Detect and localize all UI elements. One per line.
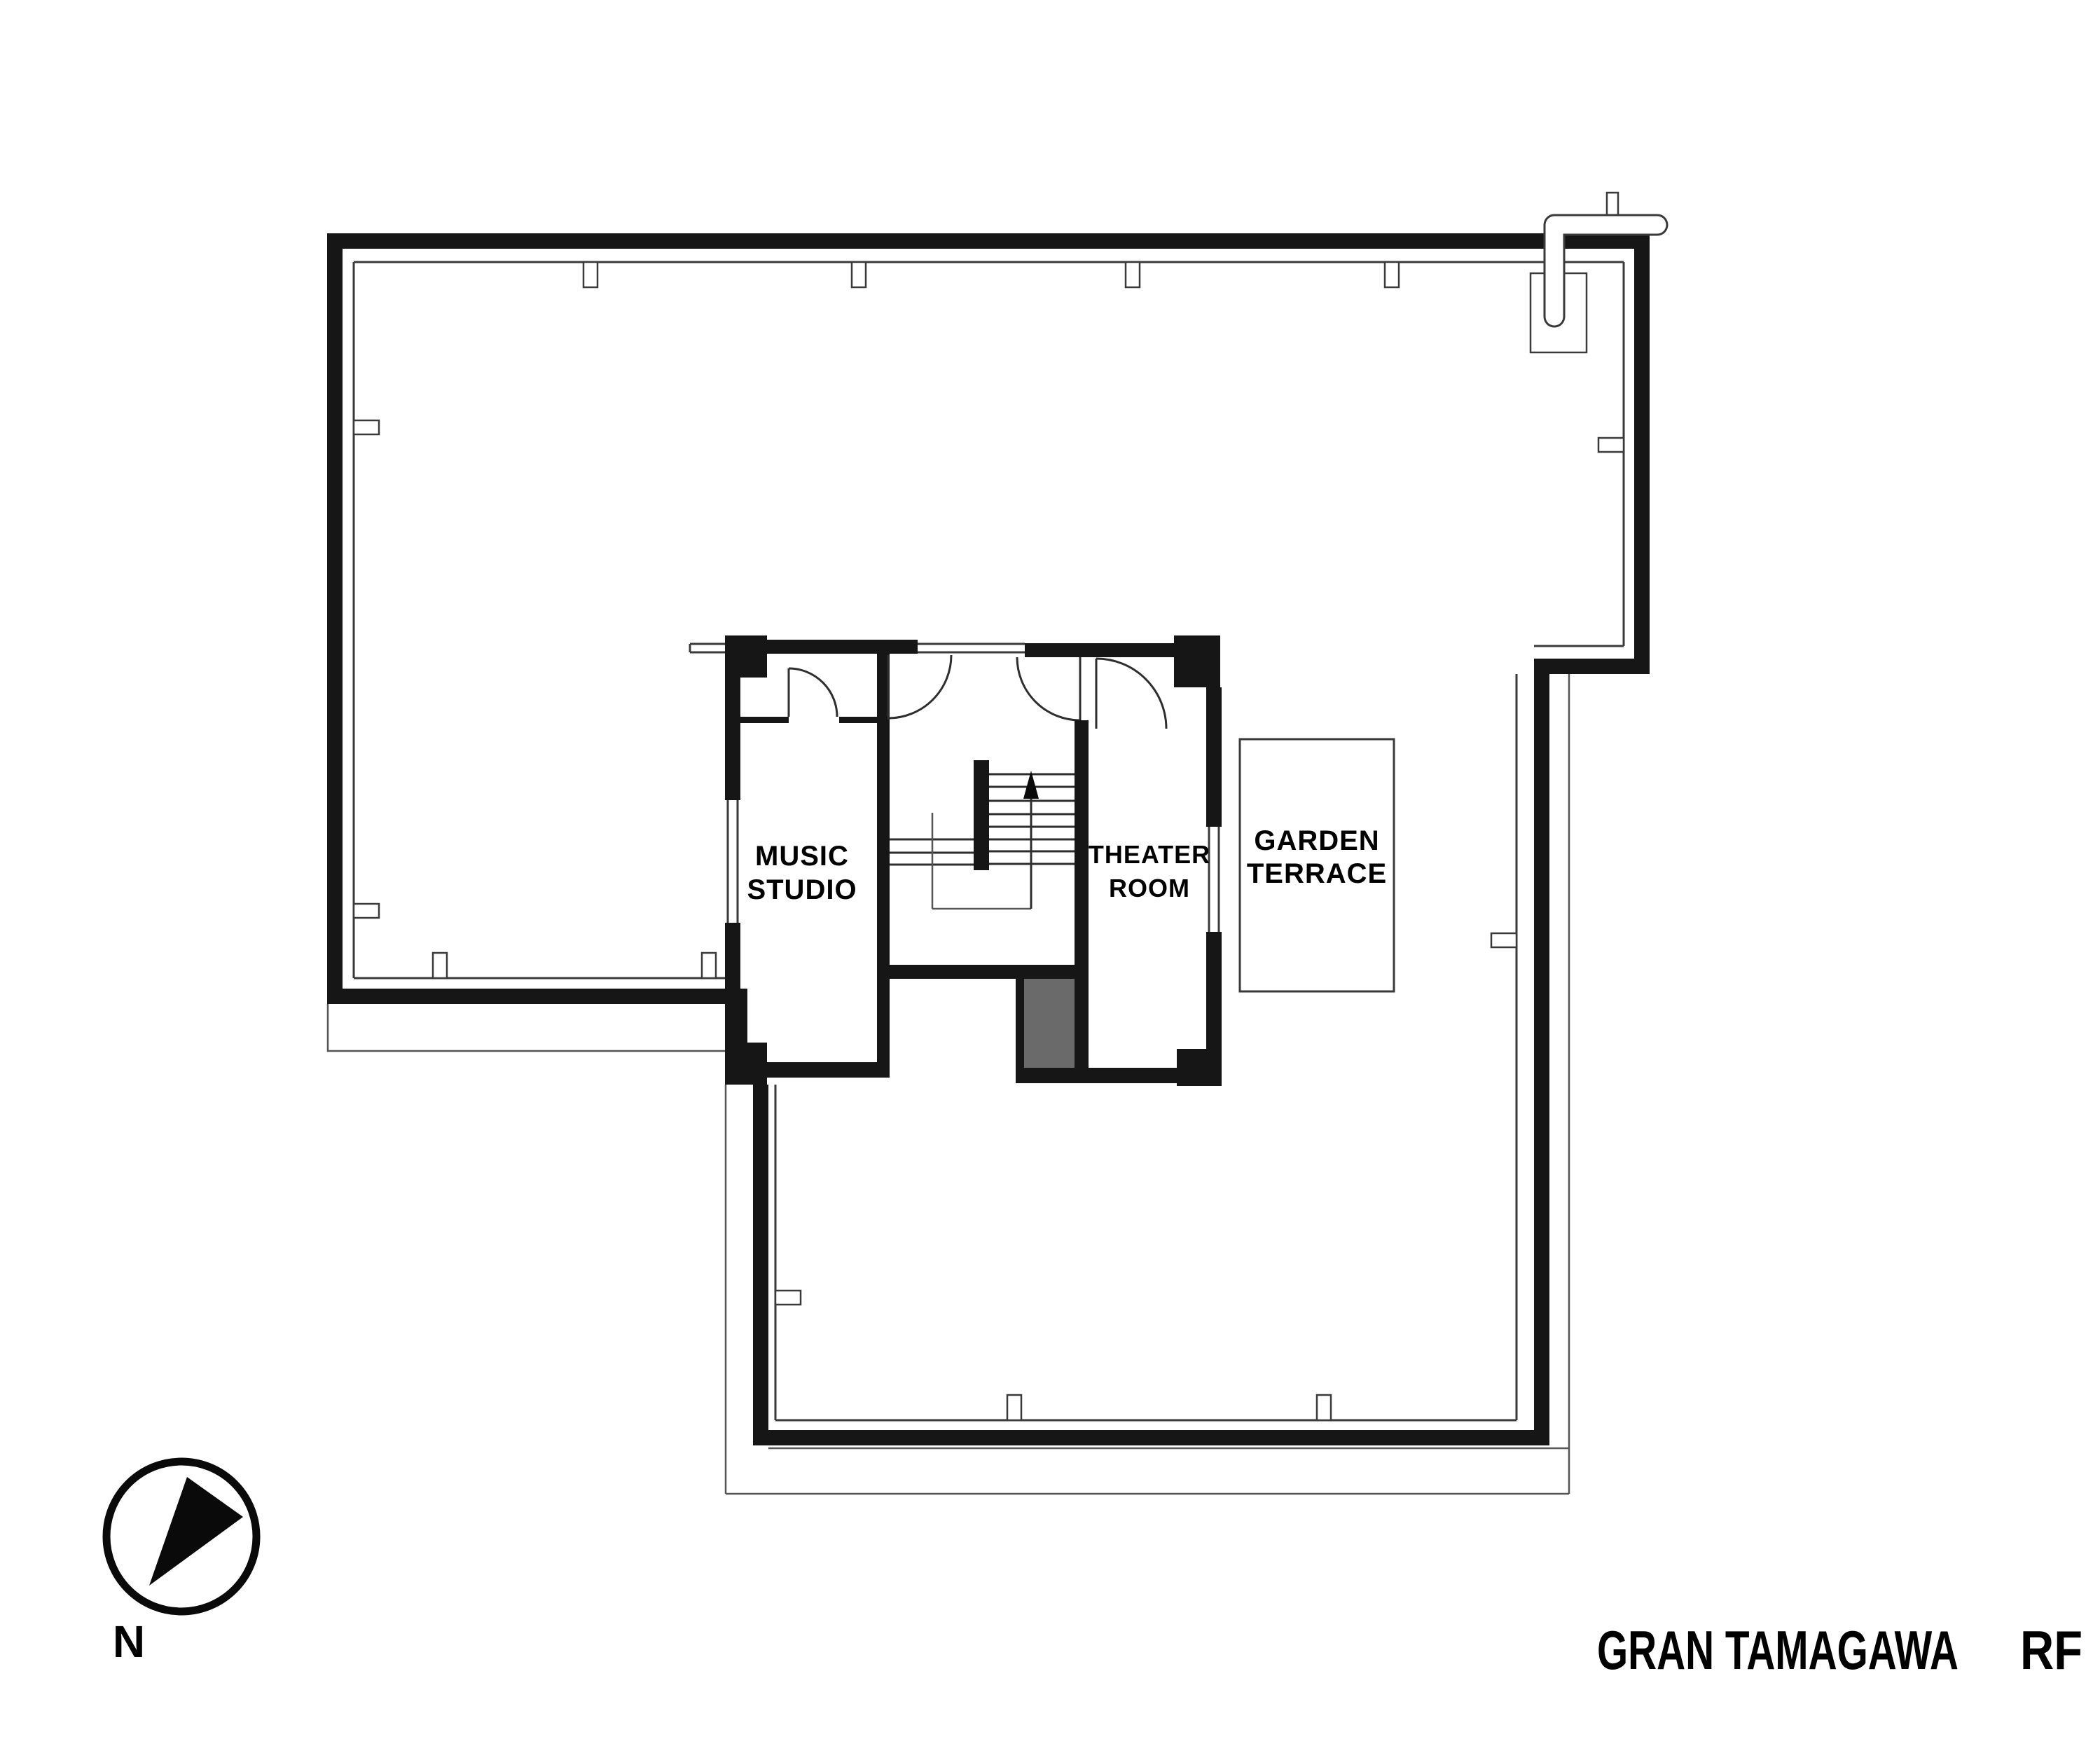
wall-left — [327, 233, 343, 1004]
grid-tick — [354, 420, 379, 434]
grid-tick — [1317, 1395, 1331, 1420]
column — [1174, 635, 1220, 687]
stairs — [890, 760, 1075, 909]
wall-left-lower — [753, 1085, 768, 1445]
title-block: GRAN TAMAGAWA RF — [1597, 1619, 2082, 1681]
theater-room-label-2: ROOM — [1109, 874, 1190, 902]
door-swing — [789, 668, 837, 717]
wall — [890, 965, 1075, 979]
north-needle-icon — [149, 1477, 243, 1586]
grid-tick — [852, 262, 866, 287]
wall — [740, 717, 789, 723]
eave-strip-left-wing — [328, 1004, 732, 1051]
north-label: N — [113, 1616, 145, 1667]
door-swing — [1017, 657, 1080, 720]
wall-right-upper — [1634, 233, 1650, 674]
garden-terrace-label-1: GARDEN — [1254, 825, 1379, 856]
project-title: GRAN TAMAGAWA — [1597, 1619, 1959, 1681]
wall — [725, 678, 740, 800]
grid-tick — [1385, 262, 1399, 287]
wall — [1016, 1068, 1178, 1083]
stair-stringer-wall — [974, 760, 989, 870]
column — [1177, 1049, 1222, 1086]
eave-deck-lines — [328, 674, 1569, 1494]
wall — [767, 640, 918, 654]
music-studio-label-1: MUSIC — [755, 841, 849, 872]
wall-bottom — [753, 1430, 1549, 1445]
wall-top — [327, 233, 1650, 249]
door-swing — [888, 655, 951, 718]
wall — [725, 923, 740, 1043]
floor-label: RF — [2020, 1619, 2082, 1681]
wall — [767, 1062, 890, 1078]
grid-tick — [354, 904, 379, 918]
wall — [839, 717, 877, 723]
grid-tick — [583, 262, 597, 287]
wall — [1206, 932, 1222, 1049]
grid-tick — [1491, 933, 1517, 947]
wall-right-step — [1534, 659, 1650, 674]
garden-terrace: GARDEN TERRACE — [1240, 739, 1394, 991]
wall — [1025, 643, 1174, 657]
elevator-shaft — [1024, 979, 1075, 1068]
grid-tick — [433, 953, 447, 978]
wall — [1206, 687, 1222, 827]
door-swing — [1096, 659, 1166, 729]
garden-terrace-label-2: TERRACE — [1247, 858, 1387, 889]
wall — [1016, 979, 1024, 1083]
music-studio-label-2: STUDIO — [747, 874, 857, 905]
column — [725, 635, 767, 678]
grid-tick — [1126, 262, 1140, 287]
roof-floor-plan: MUSIC STUDIO — [0, 0, 2100, 1739]
wall — [1075, 720, 1089, 1083]
theater-room: THEATER ROOM — [1075, 659, 1222, 1086]
column — [725, 1043, 767, 1085]
grid-tick — [1007, 1395, 1021, 1420]
core-block: MUSIC STUDIO — [690, 635, 1222, 1086]
grid-tick — [702, 953, 716, 978]
grid-tick — [775, 1291, 801, 1305]
wall-right-lower — [1534, 659, 1549, 1445]
wall-bottom-left-wing — [327, 989, 747, 1004]
grid-tick — [1598, 438, 1624, 452]
north-compass: N — [106, 1462, 256, 1667]
theater-room-label-1: THEATER — [1089, 840, 1210, 869]
